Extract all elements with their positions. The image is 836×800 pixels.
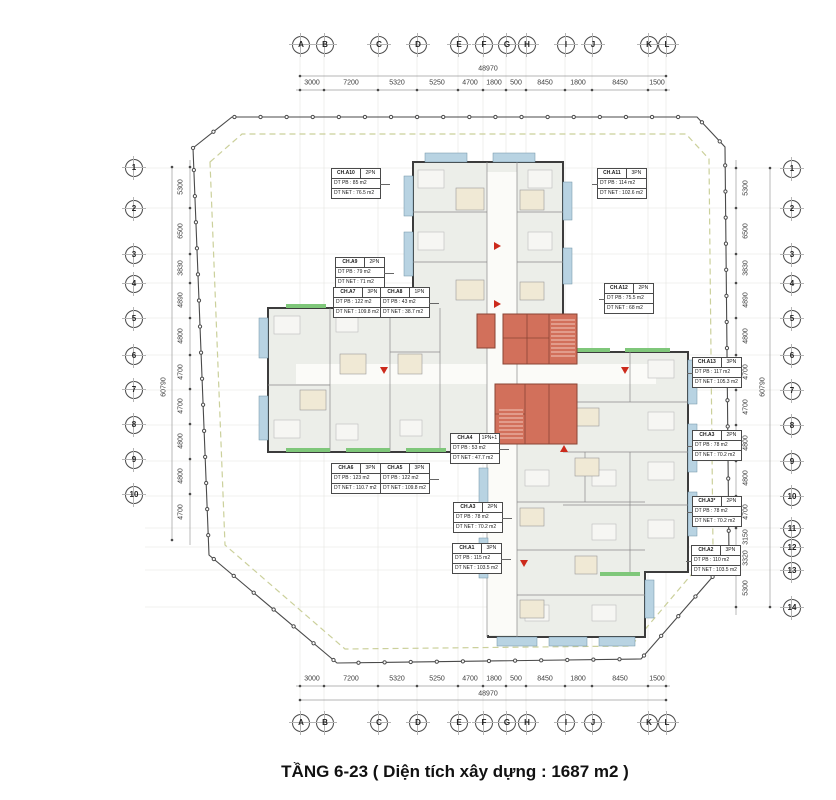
grid-bubble-3: 3 [783,246,801,264]
unit-net-area: DT NET : 110.7 m2 [332,484,380,493]
grid-bubble-2: 2 [125,200,143,218]
unit-label-header: CH.A32PN [454,503,502,513]
dim-y-total: 60790 [161,377,168,396]
dim-x-total: 48970 [478,691,497,698]
grid-bubble-9: 9 [783,453,801,471]
dim-x-segment: 4700 [462,676,478,683]
dim-y-segment: 4800 [743,435,750,451]
unit-bedroom-type: 2PN [722,431,741,440]
grid-bubble-L: L [658,714,676,732]
grid-bubble-7: 7 [783,382,801,400]
unit-net-area: DT NET : 105.3 m2 [693,378,741,387]
dim-x-segment: 8450 [537,676,553,683]
dim-y-segment: 5300 [178,179,185,195]
dim-x-segment: 7200 [343,676,359,683]
dim-y-segment: 3830 [743,260,750,276]
dim-x-segment: 1800 [570,80,586,87]
unit-code: CH.A1 [453,544,482,553]
unit-gross-area: DT PB : 123 m2 [332,474,380,484]
unit-label-CH.A11: CH.A113PNDT PB : 114 m2DT NET : 102.6 m2 [597,168,647,199]
grid-bubble-6: 6 [125,347,143,365]
unit-label-header: CH.A23PN [692,546,740,556]
grid-bubble-8: 8 [125,416,143,434]
unit-gross-area: DT PB : 122 m2 [334,298,382,308]
grid-bubble-E: E [450,36,468,54]
grid-bubble-11: 11 [783,520,801,538]
unit-label-CH.A3*: CH.A3*2PNDT PB : 78 m2DT NET : 70.2 m2 [692,496,742,527]
unit-net-area: DT NET : 109.8 m2 [334,308,382,317]
unit-code: CH.A13 [693,358,722,367]
unit-net-area: DT NET : 103.5 m2 [692,566,740,575]
grid-bubble-A: A [292,714,310,732]
unit-gross-area: DT PB : 122 m2 [381,474,429,484]
unit-bedroom-type: 3PN [721,546,740,555]
grid-bubble-C: C [370,36,388,54]
grid-bubble-8: 8 [783,417,801,435]
grid-bubble-5: 5 [783,310,801,328]
grid-bubble-4: 4 [125,275,143,293]
grid-bubble-L: L [658,36,676,54]
grid-bubble-10: 10 [125,486,143,504]
dim-x-segment: 8450 [537,80,553,87]
unit-code: CH.A3 [454,503,483,512]
grid-bubble-B: B [316,714,334,732]
dim-x-segment: 1500 [649,676,665,683]
dim-y-segment: 4700 [743,364,750,380]
grid-bubble-I: I [557,714,575,732]
unit-gross-area: DT PB : 78 m2 [693,441,741,451]
dim-y-segment: 4700 [178,364,185,380]
grid-bubble-G: G [498,36,516,54]
unit-label-CH.A3: CH.A32PNDT PB : 78 m2DT NET : 70.2 m2 [692,430,742,461]
unit-bedroom-type: 3PN [722,358,741,367]
grid-bubble-G: G [498,714,516,732]
unit-gross-area: DT PB : 85 m2 [332,179,380,189]
grid-bubble-5: 5 [125,310,143,328]
grid-bubble-B: B [316,36,334,54]
unit-gross-area: DT PB : 78 m2 [693,507,741,517]
unit-code: CH.A3 [693,431,722,440]
unit-label-CH.A8: CH.A81PNDT PB : 43 m2DT NET : 38.7 m2 [380,287,430,318]
unit-bedroom-type: 2PN [365,258,384,267]
unit-bedroom-type: 3PN [361,464,380,473]
dim-y-segment: 5300 [743,580,750,596]
unit-label-header: CH.A102PN [332,169,380,179]
unit-gross-area: DT PB : 53 m2 [451,444,499,454]
grid-bubble-F: F [475,714,493,732]
unit-label-header: CH.A133PN [693,358,741,368]
dim-y-segment: 4890 [178,292,185,308]
unit-gross-area: DT PB : 110 m2 [692,556,740,566]
grid-bubble-6: 6 [783,347,801,365]
unit-label-CH.A5: CH.A53PNDT PB : 122 m2DT NET : 109.8 m2 [380,463,430,494]
dim-x-segment: 5250 [429,676,445,683]
dim-x-segment: 8450 [612,676,628,683]
grid-bubble-3: 3 [125,246,143,264]
grid-bubble-H: H [518,36,536,54]
unit-gross-area: DT PB : 115 m2 [453,554,501,564]
dim-y-segment: 4800 [178,328,185,344]
grid-bubble-D: D [409,36,427,54]
unit-label-header: CH.A73PN [334,288,382,298]
grid-bubble-J: J [584,36,602,54]
dim-x-segment: 3000 [304,676,320,683]
dim-x-segment: 1500 [649,80,665,87]
grid-bubble-J: J [584,714,602,732]
dim-y-segment: 4800 [743,470,750,486]
unit-bedroom-type: 2PN [722,497,741,506]
unit-bedroom-type: 2PN [483,503,502,512]
unit-bedroom-type: 1PN+1 [480,434,499,443]
dim-y-segment: 6500 [743,223,750,239]
unit-label-header: CH.A32PN [693,431,741,441]
unit-label-CH.A1: CH.A13PNDT PB : 115 m2DT NET : 103.5 m2 [452,543,502,574]
unit-net-area: DT NET : 103.5 m2 [453,564,501,573]
unit-label-header: CH.A63PN [332,464,380,474]
dim-y-segment: 4800 [178,468,185,484]
grid-bubble-13: 13 [783,562,801,580]
unit-label-CH.A9: CH.A92PNDT PB : 79 m2DT NET : 71 m2 [335,257,385,288]
unit-bedroom-type: 3PN [410,464,429,473]
unit-net-area: DT NET : 109.8 m2 [381,484,429,493]
unit-net-area: DT NET : 76.5 m2 [332,189,380,198]
grid-bubble-4: 4 [783,275,801,293]
floorplan-canvas: TẦNG 6-23 ( Diện tích xây dựng : 1687 m2… [0,0,836,800]
dim-y-segment: 4700 [178,398,185,414]
dim-y-segment: 5300 [743,180,750,196]
unit-label-CH.A10: CH.A102PNDT PB : 85 m2DT NET : 76.5 m2 [331,168,381,199]
floor-plan-drawing [0,0,836,800]
dim-y-segment: 4700 [178,504,185,520]
unit-gross-area: DT PB : 78 m2 [454,513,502,523]
dim-x-segment: 1800 [486,80,502,87]
unit-gross-area: DT PB : 75.5 m2 [605,294,653,304]
dim-x-total: 48970 [478,66,497,73]
unit-label-CH.A6: CH.A63PNDT PB : 123 m2DT NET : 110.7 m2 [331,463,381,494]
dim-x-segment: 500 [510,80,522,87]
grid-bubble-7: 7 [125,381,143,399]
unit-net-area: DT NET : 47.7 m2 [451,454,499,463]
unit-net-area: DT NET : 68 m2 [605,304,653,313]
unit-code: CH.A6 [332,464,361,473]
unit-label-CH.A4: CH.A41PN+1DT PB : 53 m2DT NET : 47.7 m2 [450,433,500,464]
dim-y-segment: 3320 [743,550,750,566]
unit-label-header: CH.A41PN+1 [451,434,499,444]
unit-label-header: CH.A3*2PN [693,497,741,507]
grid-bubble-D: D [409,714,427,732]
unit-bedroom-type: 3PN [627,169,646,178]
dim-x-segment: 3000 [304,80,320,87]
grid-bubble-A: A [292,36,310,54]
unit-net-area: DT NET : 70.2 m2 [693,517,741,526]
unit-code: CH.A2 [692,546,721,555]
unit-net-area: DT NET : 38.7 m2 [381,308,429,317]
dim-x-segment: 4700 [462,80,478,87]
grid-bubble-K: K [640,36,658,54]
dim-x-segment: 1800 [570,676,586,683]
unit-label-header: CH.A122PN [605,284,653,294]
unit-code: CH.A12 [605,284,634,293]
plan-title: TẦNG 6-23 ( Diện tích xây dựng : 1687 m2… [281,762,629,782]
grid-bubble-9: 9 [125,451,143,469]
unit-code: CH.A3* [693,497,722,506]
dim-x-segment: 5250 [429,80,445,87]
grid-bubble-I: I [557,36,575,54]
unit-gross-area: DT PB : 114 m2 [598,179,646,189]
dim-x-segment: 1800 [486,676,502,683]
dim-x-segment: 500 [510,676,522,683]
unit-label-CH.A13: CH.A133PNDT PB : 117 m2DT NET : 105.3 m2 [692,357,742,388]
dim-y-segment: 4800 [743,328,750,344]
unit-bedroom-type: 2PN [361,169,380,178]
unit-code: CH.A5 [381,464,410,473]
unit-code: CH.A8 [381,288,410,297]
unit-label-CH.A3: CH.A32PNDT PB : 78 m2DT NET : 70.2 m2 [453,502,503,533]
unit-label-header: CH.A92PN [336,258,384,268]
unit-bedroom-type: 1PN [410,288,429,297]
grid-bubble-2: 2 [783,200,801,218]
dim-y-segment: 4800 [178,433,185,449]
dim-y-segment: 3150 [743,529,750,545]
dim-x-segment: 5320 [389,676,405,683]
unit-code: CH.A7 [334,288,363,297]
dim-y-segment: 4700 [743,399,750,415]
dim-x-segment: 7200 [343,80,359,87]
dim-y-segment: 3830 [178,260,185,276]
unit-label-header: CH.A53PN [381,464,429,474]
unit-code: CH.A10 [332,169,361,178]
grid-bubble-10: 10 [783,488,801,506]
unit-label-CH.A12: CH.A122PNDT PB : 75.5 m2DT NET : 68 m2 [604,283,654,314]
dim-x-segment: 5320 [389,80,405,87]
grid-bubble-E: E [450,714,468,732]
grid-bubble-H: H [518,714,536,732]
unit-net-area: DT NET : 70.2 m2 [693,451,741,460]
grid-bubble-K: K [640,714,658,732]
unit-label-header: CH.A81PN [381,288,429,298]
grid-bubble-C: C [370,714,388,732]
unit-gross-area: DT PB : 43 m2 [381,298,429,308]
unit-label-header: CH.A13PN [453,544,501,554]
unit-label-CH.A2: CH.A23PNDT PB : 110 m2DT NET : 103.5 m2 [691,545,741,576]
unit-net-area: DT NET : 102.6 m2 [598,189,646,198]
unit-label-header: CH.A113PN [598,169,646,179]
dim-y-segment: 6500 [178,223,185,239]
unit-bedroom-type: 3PN [482,544,501,553]
unit-gross-area: DT PB : 117 m2 [693,368,741,378]
grid-bubble-12: 12 [783,539,801,557]
dim-x-segment: 8450 [612,80,628,87]
grid-bubble-F: F [475,36,493,54]
unit-code: CH.A4 [451,434,480,443]
unit-net-area: DT NET : 70.2 m2 [454,523,502,532]
grid-bubble-14: 14 [783,599,801,617]
dim-y-segment: 4890 [743,292,750,308]
unit-gross-area: DT PB : 79 m2 [336,268,384,278]
unit-label-CH.A7: CH.A73PNDT PB : 122 m2DT NET : 109.8 m2 [333,287,383,318]
grid-bubble-1: 1 [125,159,143,177]
dim-y-segment: 4700 [743,504,750,520]
unit-code: CH.A9 [336,258,365,267]
dim-y-total: 60790 [760,377,767,396]
unit-bedroom-type: 2PN [634,284,653,293]
unit-code: CH.A11 [598,169,627,178]
unit-net-area: DT NET : 71 m2 [336,278,384,287]
grid-bubble-1: 1 [783,160,801,178]
